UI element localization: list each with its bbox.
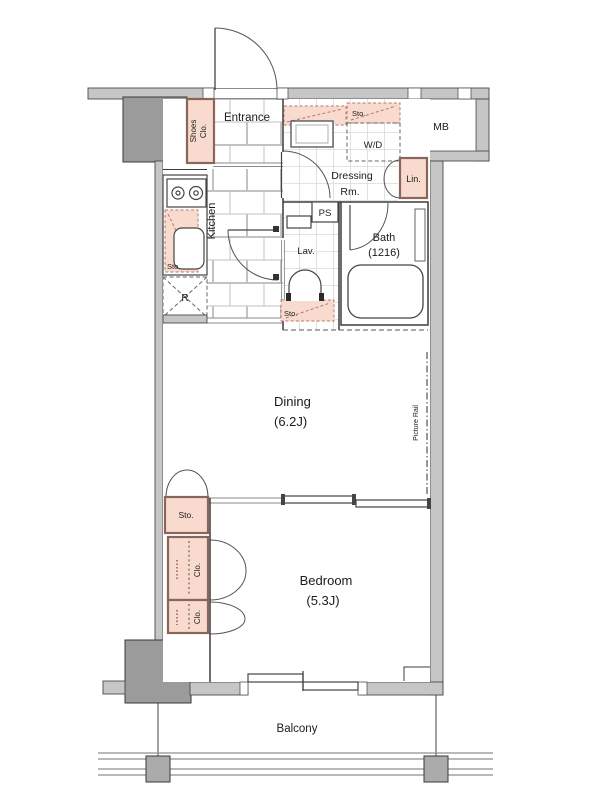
wall-south-right <box>360 682 443 695</box>
room-label-bedroom: Bedroom <box>300 573 353 588</box>
sliding-door-panel-1 <box>283 496 353 503</box>
picture-rail-label: Picture Rail <box>413 405 420 441</box>
toilet-tank <box>287 216 311 228</box>
kitchen-south-wall-stub <box>163 315 207 323</box>
linen-label: Lin. <box>406 174 421 184</box>
room-label-lavatory: Lav. <box>297 246 314 257</box>
pipe-space-label: PS <box>319 208 332 219</box>
hall-door-stop <box>273 274 279 280</box>
room-size-dining: (6.2J) <box>274 414 307 429</box>
floor-plan-canvas: Shoes Clo. Entrance Sto. R Kitchen <box>0 0 600 800</box>
sliding-door-cap-right <box>427 498 431 509</box>
wall-south-left <box>190 682 248 695</box>
room-label-kitchen: Kitchen <box>206 203 218 240</box>
stove-burner-right-center <box>194 191 198 195</box>
window-jamb-left <box>240 682 248 695</box>
meter-box-notch-right <box>458 88 471 99</box>
room-label-balcony: Balcony <box>277 723 318 735</box>
entrance-door-jamb-left <box>203 88 214 99</box>
hallway-tile-floor <box>207 169 283 318</box>
room-label-dressing-2: Rm. <box>340 186 359 198</box>
sliding-door-cap-left <box>281 494 285 505</box>
window-jamb-right <box>358 682 367 695</box>
refrigerator-label: R <box>181 293 188 304</box>
sliding-door-panel-2 <box>356 500 429 507</box>
room-size-bedroom: (5.3J) <box>306 593 339 608</box>
room-label-entrance: Entrance <box>224 112 270 124</box>
room-size-bath: (1216) <box>368 247 400 259</box>
dining-storage-label: Sto. <box>178 510 193 520</box>
room-label-bath: Bath <box>373 232 396 244</box>
toilet-hinge-left <box>286 293 291 301</box>
sliding-door-cap-middle <box>352 494 356 505</box>
closet-lower <box>168 600 208 633</box>
hall-door-hinge <box>273 226 279 232</box>
room-label-dining: Dining <box>274 394 311 409</box>
room-label-dressing-1: Dressing <box>331 170 373 182</box>
balcony-area: Balcony <box>98 695 493 782</box>
corridor-wall-right <box>279 88 489 99</box>
railing-post-left <box>146 756 170 782</box>
meter-box-label: MB <box>433 121 449 133</box>
meter-box-notch-left <box>408 88 421 99</box>
bath-room: Bath (1216) <box>341 202 428 325</box>
entrance-tile-floor <box>213 99 283 163</box>
closet-lower-label: Clo. <box>193 610 202 624</box>
kitchen-storage-label: Sto. <box>167 262 180 271</box>
wall-east <box>430 161 443 695</box>
toilet-icon <box>289 270 321 301</box>
wd-storage-label: Sto. <box>352 109 365 118</box>
wall-tee-bottom-left <box>103 681 125 694</box>
wall-west <box>155 161 163 645</box>
railing-post-right <box>424 756 448 782</box>
shoes-closet-label-2: Clo. <box>199 124 208 138</box>
lav-storage-label: Sto. <box>284 309 297 318</box>
floor-plan: Shoes Clo. Entrance Sto. R Kitchen <box>0 0 600 800</box>
balcony-window-panel-1 <box>248 674 303 682</box>
washer-dryer-label: W/D <box>364 140 383 151</box>
balcony-window-panel-2 <box>303 682 358 690</box>
shoes-closet-label-1: Shoes <box>189 120 198 143</box>
closet-upper-label: Clo. <box>193 563 202 577</box>
stove-burner-left-center <box>176 191 180 195</box>
toilet-hinge-right <box>319 293 324 301</box>
entrance-door-arc <box>215 28 277 90</box>
entrance-door-jamb-right <box>277 88 288 99</box>
closet-upper <box>168 537 208 600</box>
bath-counter <box>415 209 425 261</box>
bathtub-icon <box>348 265 423 318</box>
